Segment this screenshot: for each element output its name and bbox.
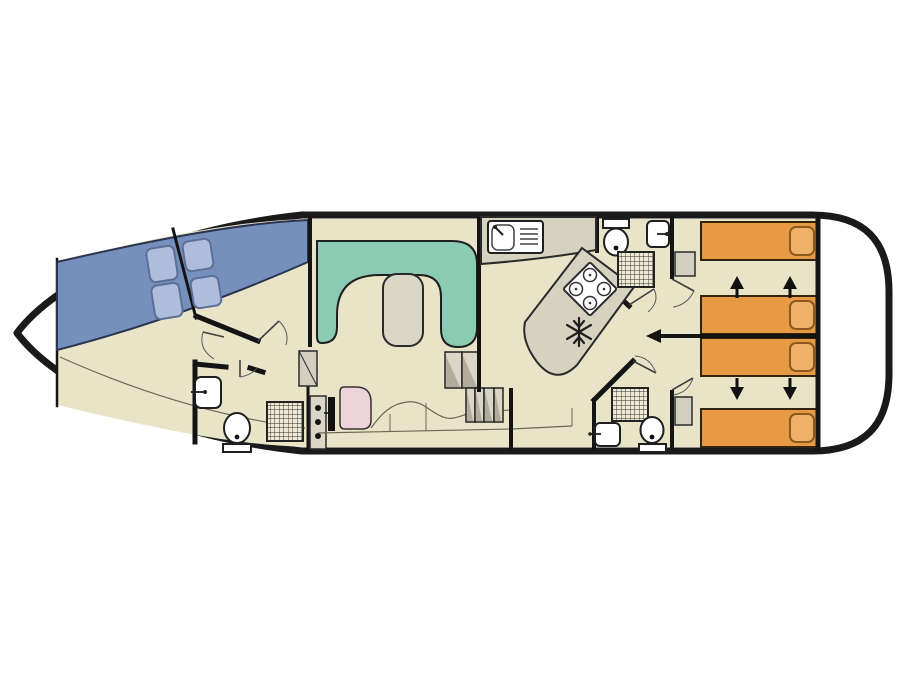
pillow-front-4	[190, 275, 222, 309]
pillow-front-2	[151, 282, 184, 320]
shower-grid	[618, 252, 654, 287]
helm-seat	[340, 387, 371, 429]
boat-floorplan	[0, 0, 901, 676]
boat-floorplan-page	[0, 0, 901, 676]
toilet-base	[639, 444, 666, 452]
pillow-front-3	[182, 238, 214, 272]
shower-grid	[612, 388, 648, 421]
toilet-cistern	[603, 219, 629, 228]
saloon-table	[383, 274, 423, 346]
pillow-aft-3	[790, 343, 814, 371]
wardrobe	[675, 397, 692, 425]
door-post	[328, 397, 335, 431]
wardrobe	[675, 252, 695, 276]
shower-grid	[267, 402, 303, 441]
pillow-aft-4	[790, 414, 814, 442]
toilet-base	[223, 444, 251, 452]
pillow-aft-2	[790, 301, 814, 329]
pillow-front-1	[146, 245, 179, 283]
pillow-aft-1	[790, 227, 814, 255]
